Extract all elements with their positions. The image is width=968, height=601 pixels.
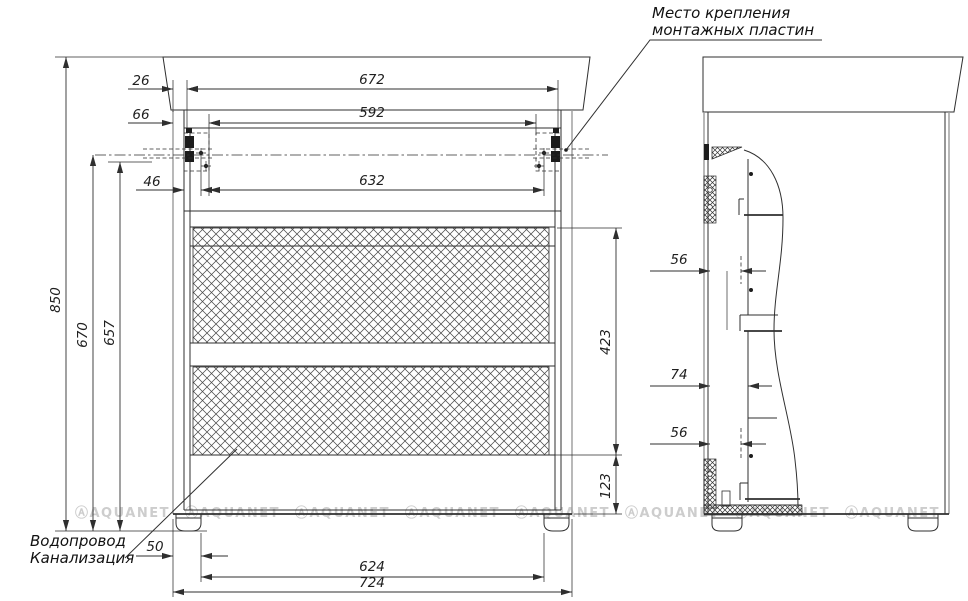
technical-drawing: ⒶAQUANET ⒶAQUANET ⒶAQUANET ⒶAQUANET ⒶAQU… xyxy=(0,0,968,601)
side-mount-wedge xyxy=(712,147,742,159)
side-mount-strip-upper xyxy=(704,176,716,223)
dim-inner-width-top: 672 xyxy=(359,72,385,88)
watermark: ⒶAQUANET xyxy=(515,505,610,521)
side-bottom-strip xyxy=(704,505,802,515)
countertop-side xyxy=(703,57,963,112)
mounting-plates-callout: Место крепления монтажных пластин xyxy=(564,4,822,152)
dim-plate-rail-offset: 46 xyxy=(143,174,160,190)
mounting-plate-left xyxy=(184,128,211,171)
watermark-row: ⒶAQUANET ⒶAQUANET ⒶAQUANET ⒶAQUANET ⒶAQU… xyxy=(75,505,940,521)
dim-plate-bottom-height: 657 xyxy=(102,320,118,346)
watermark: ⒶAQUANET xyxy=(185,505,280,521)
mounting-plate-right xyxy=(534,128,561,171)
watermark: ⒶAQUANET xyxy=(845,505,940,521)
plumbing-label-line2: Канализация xyxy=(30,549,134,567)
drawer-bottom-front xyxy=(193,367,549,455)
plumbing-label-line1: Водопровод xyxy=(30,532,126,550)
mounting-label-line1: Место крепления xyxy=(652,4,790,22)
watermark: ⒶAQUANET xyxy=(75,505,170,521)
side-view: 56 74 56 xyxy=(650,57,963,531)
dim-mount-axis-height: 670 xyxy=(75,322,91,348)
watermark: ⒶAQUANET xyxy=(405,505,500,521)
drawing-svg: ⒶAQUANET ⒶAQUANET ⒶAQUANET ⒶAQUANET ⒶAQU… xyxy=(0,0,968,601)
dim-side-lower-inset: 56 xyxy=(670,425,687,441)
side-panel-curve xyxy=(744,150,798,507)
dim-plate-edge-offset: 66 xyxy=(132,107,149,123)
dim-drawer-zone-height: 423 xyxy=(598,329,614,355)
mounting-label-line2: монтажных пластин xyxy=(652,21,814,39)
dim-foot-inset: 50 xyxy=(146,539,163,555)
watermark: ⒶAQUANET xyxy=(295,505,390,521)
dim-side-middle-inset: 74 xyxy=(670,367,687,383)
dim-mount-hole-span: 632 xyxy=(359,173,385,189)
dim-overall-height: 850 xyxy=(48,287,64,313)
dim-side-upper-inset: 56 xyxy=(670,252,687,268)
side-mount-strip-lower xyxy=(704,459,716,508)
dim-bottom-gap-height: 123 xyxy=(598,473,614,499)
dim-overall-width: 724 xyxy=(359,575,385,591)
drawer-top-front xyxy=(193,228,549,343)
dim-countertop-side-offset: 26 xyxy=(132,73,149,89)
dim-feet-inner-span: 624 xyxy=(359,559,385,575)
dim-plate-span: 592 xyxy=(359,105,385,121)
